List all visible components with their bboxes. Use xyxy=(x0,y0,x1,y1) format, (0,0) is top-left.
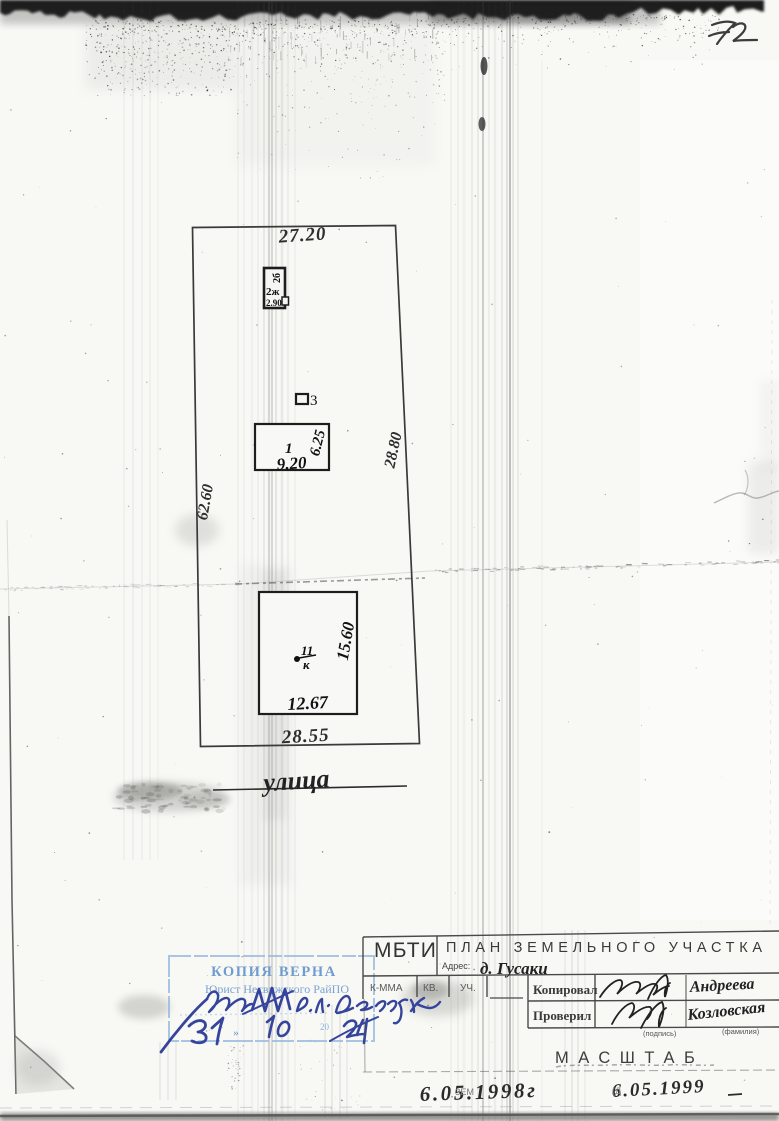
svg-text:2.90: 2.90 xyxy=(266,298,282,308)
svg-text:2б: 2б xyxy=(272,273,283,283)
svg-text:улица: улица xyxy=(259,764,330,798)
svg-text:Проверил: Проверил xyxy=(533,1008,591,1023)
svg-text:(подпись): (подпись) xyxy=(643,1029,677,1038)
svg-text:27.20: 27.20 xyxy=(277,223,327,247)
svg-text:(Д: (Д xyxy=(612,1086,621,1096)
svg-text:28.55: 28.55 xyxy=(280,725,330,749)
svg-text:6.05.1998г: 6.05.1998г xyxy=(419,1078,538,1106)
svg-text:9.20: 9.20 xyxy=(276,453,308,474)
svg-text:д. Гусаки: д. Гусаки xyxy=(480,959,548,978)
svg-text:К-ММА: К-ММА xyxy=(370,983,403,994)
svg-text:Адрес:: Адрес: xyxy=(442,961,470,971)
svg-text:к: к xyxy=(303,657,310,672)
svg-text:3: 3 xyxy=(310,393,318,409)
svg-text:КВ.: КВ. xyxy=(423,983,438,994)
svg-text:12.67: 12.67 xyxy=(287,692,329,714)
svg-text:20: 20 xyxy=(320,1022,330,1032)
svg-text:2ж: 2ж xyxy=(266,286,280,298)
svg-text:Андреева: Андреева xyxy=(688,976,755,996)
svg-text:Копировал: Копировал xyxy=(533,982,598,997)
svg-text:ПЛАН ЗЕМЕЛЬНОГО УЧАСТКА: ПЛАН ЗЕМЕЛЬНОГО УЧАСТКА xyxy=(446,940,767,956)
svg-text:УЧ.: УЧ. xyxy=(460,983,476,994)
svg-text:КОПИЯ ВЕРНА: КОПИЯ ВЕРНА xyxy=(211,964,337,980)
svg-text:МБТИ: МБТИ xyxy=(374,939,437,962)
svg-text:Юрист Несвижского РайПО: Юрист Несвижского РайПО xyxy=(205,982,349,996)
svg-text:(фамилия): (фамилия) xyxy=(722,1027,760,1036)
svg-text:»: » xyxy=(233,1027,239,1039)
svg-text:ЗЕМ: ЗЕМ xyxy=(455,1087,474,1097)
